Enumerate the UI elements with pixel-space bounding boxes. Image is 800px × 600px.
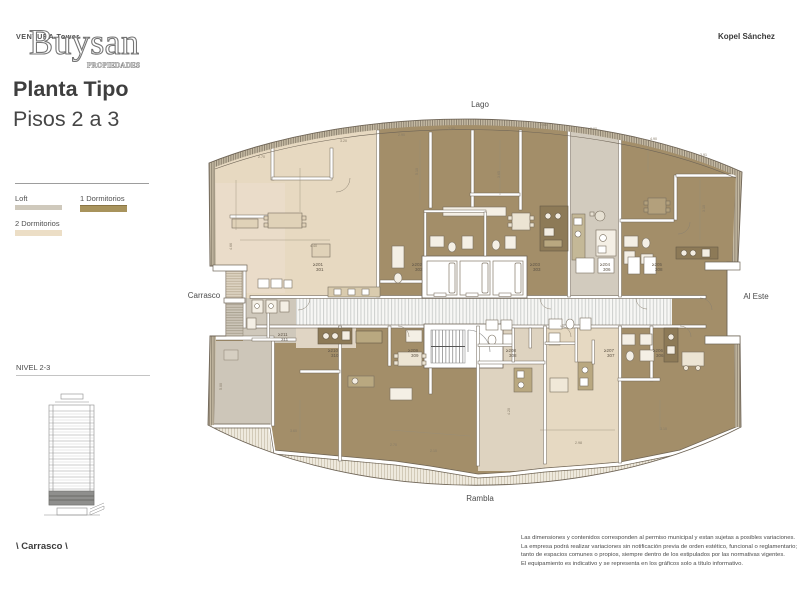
svg-text:2.98: 2.98 <box>575 441 582 445</box>
svg-text:301: 301 <box>316 267 324 272</box>
svg-text:310: 310 <box>331 353 339 358</box>
svg-text:4.90: 4.90 <box>650 137 657 141</box>
svg-text:306: 306 <box>656 353 664 358</box>
svg-text:2.90: 2.90 <box>448 127 455 131</box>
svg-text:2.90: 2.90 <box>590 127 597 131</box>
svg-text:4.20: 4.20 <box>507 408 511 415</box>
svg-text:3.10: 3.10 <box>702 205 706 212</box>
svg-text:3.60: 3.60 <box>290 429 297 433</box>
svg-text:5.00: 5.00 <box>219 383 223 390</box>
svg-text:2.70: 2.70 <box>390 443 397 447</box>
svg-text:309: 309 <box>411 353 419 358</box>
svg-text:3.91: 3.91 <box>700 153 707 157</box>
svg-text:2.10: 2.10 <box>430 449 437 453</box>
svg-text:Lago: Lago <box>471 100 489 109</box>
svg-text:302: 302 <box>415 267 423 272</box>
svg-text:2.46: 2.46 <box>540 123 547 127</box>
svg-text:306: 306 <box>603 267 611 272</box>
svg-text:2.70: 2.70 <box>258 155 265 159</box>
svg-text:307: 307 <box>607 353 615 358</box>
svg-text:3.20: 3.20 <box>340 139 347 143</box>
svg-text:4.40: 4.40 <box>310 244 317 248</box>
svg-text:303: 303 <box>533 267 541 272</box>
svg-text:311: 311 <box>281 337 289 342</box>
svg-text:3.65: 3.65 <box>497 171 501 178</box>
svg-text:308: 308 <box>509 353 517 358</box>
svg-text:5.10: 5.10 <box>415 168 419 175</box>
svg-text:2.90: 2.90 <box>398 133 405 137</box>
svg-text:Carrasco: Carrasco <box>188 291 221 300</box>
svg-text:308: 308 <box>655 267 663 272</box>
svg-text:Rambla: Rambla <box>466 494 494 503</box>
svg-text:3.10: 3.10 <box>660 427 667 431</box>
svg-text:Al Este: Al Este <box>743 292 769 301</box>
svg-text:4.66: 4.66 <box>229 243 233 250</box>
